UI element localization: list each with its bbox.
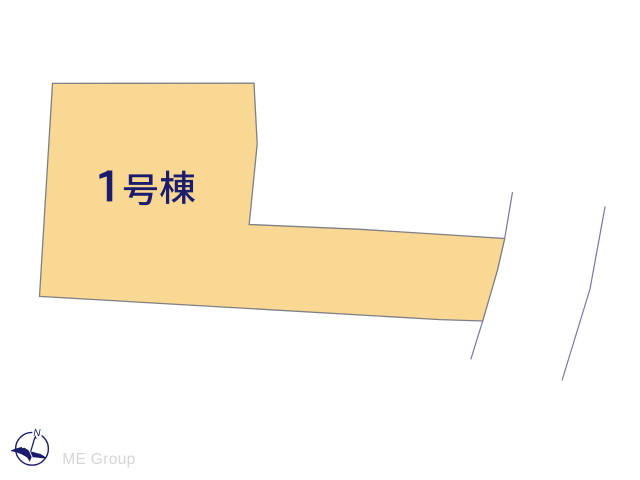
svg-text:ME Group: ME Group [62, 451, 135, 468]
